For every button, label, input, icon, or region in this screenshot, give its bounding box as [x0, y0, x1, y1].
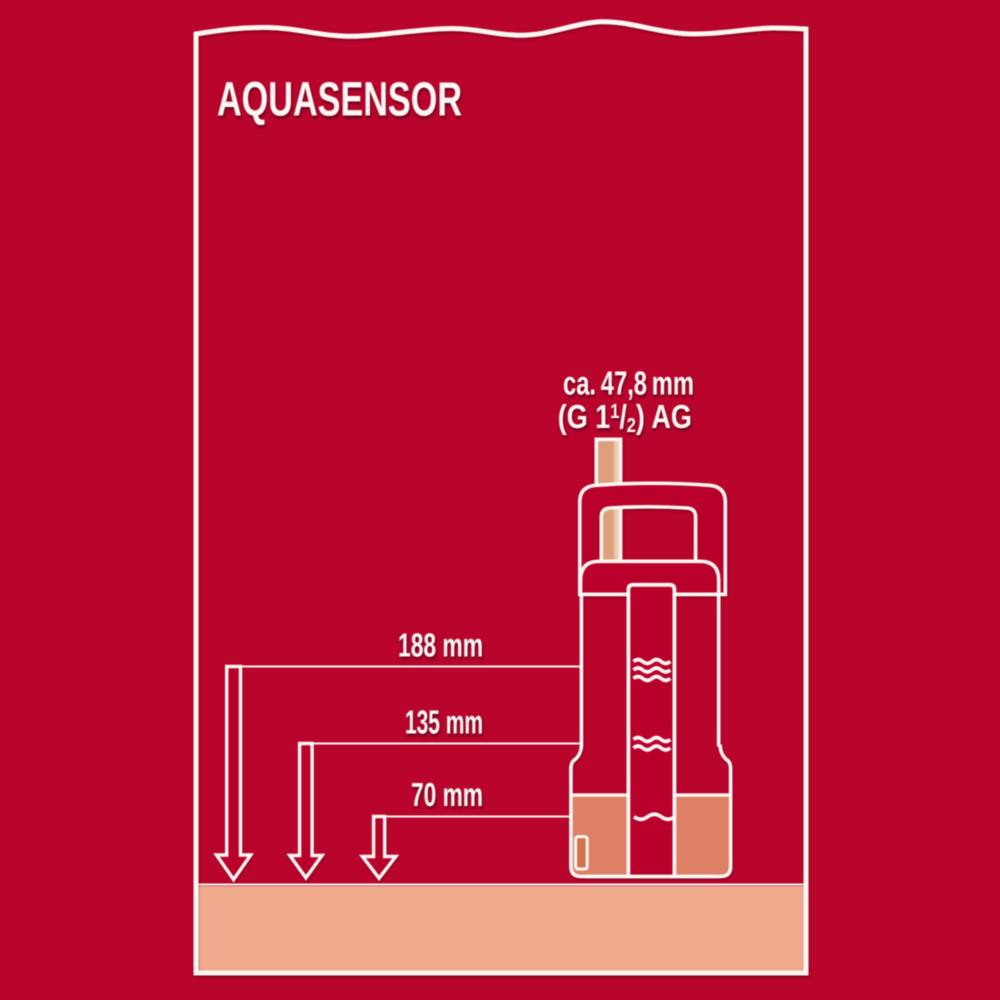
svg-text:ca. 47,8 mm: ca. 47,8 mm [563, 364, 694, 401]
svg-text:188 mm: 188 mm [398, 627, 483, 664]
svg-text:70 mm: 70 mm [411, 776, 483, 813]
svg-text:AQUASENSOR: AQUASENSOR [217, 73, 462, 127]
svg-text:(G 11/2) AG: (G 11/2) AG [558, 398, 692, 437]
svg-text:135 mm: 135 mm [405, 704, 483, 741]
